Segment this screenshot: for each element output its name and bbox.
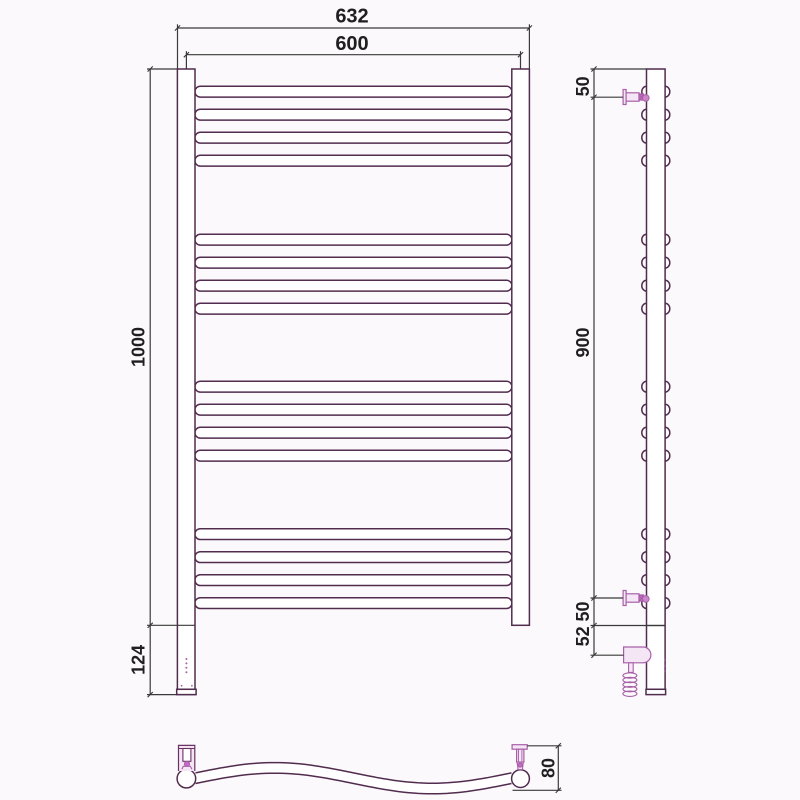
- svg-text:124: 124: [129, 645, 149, 675]
- svg-text:50: 50: [573, 76, 593, 96]
- svg-text:50: 50: [573, 601, 593, 621]
- svg-text:1000: 1000: [129, 327, 149, 367]
- svg-text:632: 632: [335, 6, 368, 28]
- svg-text:900: 900: [573, 327, 593, 357]
- svg-text:80: 80: [538, 758, 558, 778]
- svg-text:52: 52: [573, 626, 593, 646]
- svg-text:600: 600: [335, 33, 368, 55]
